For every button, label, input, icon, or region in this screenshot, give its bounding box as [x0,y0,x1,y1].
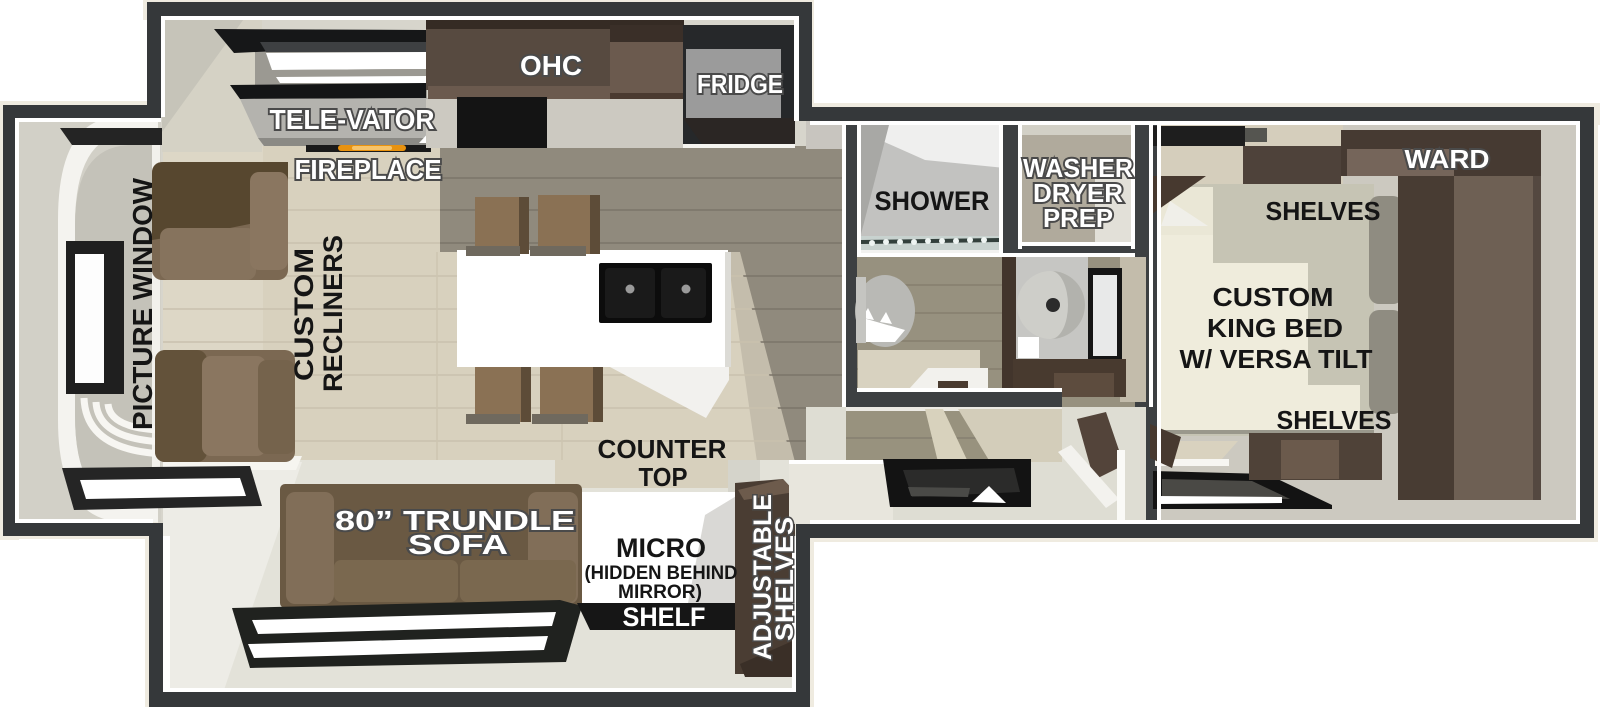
svg-text:TELE-VATOR: TELE-VATOR [270,104,435,135]
svg-text:RECLINERS: RECLINERS [318,235,348,392]
svg-text:CUSTOM: CUSTOM [1213,282,1334,312]
svg-text:MICRO: MICRO [616,533,706,563]
svg-text:PICTURE WINDOW: PICTURE WINDOW [127,177,158,430]
svg-text:FIREPLACE: FIREPLACE [295,154,442,185]
svg-text:WARD: WARD [1405,144,1490,174]
svg-text:KING BED: KING BED [1207,313,1343,343]
svg-text:MIRROR): MIRROR) [618,582,702,603]
svg-text:SHELF: SHELF [623,602,706,632]
svg-text:FRIDGE: FRIDGE [697,69,783,99]
svg-text:OHC: OHC [520,50,582,81]
svg-text:CUSTOM: CUSTOM [289,248,319,381]
svg-text:SHOWER: SHOWER [875,186,990,216]
svg-text:PREP: PREP [1043,203,1113,233]
svg-text:TOP: TOP [639,462,688,492]
svg-text:SHELVES: SHELVES [771,517,799,641]
svg-text:SOFA: SOFA [408,529,508,560]
svg-text:COUNTER: COUNTER [598,434,727,464]
svg-text:W/ VERSA TILT: W/ VERSA TILT [1180,344,1373,374]
svg-text:(HIDDEN BEHIND: (HIDDEN BEHIND [585,563,738,584]
svg-text:SHELVES: SHELVES [1277,405,1392,435]
svg-text:SHELVES: SHELVES [1266,196,1381,226]
